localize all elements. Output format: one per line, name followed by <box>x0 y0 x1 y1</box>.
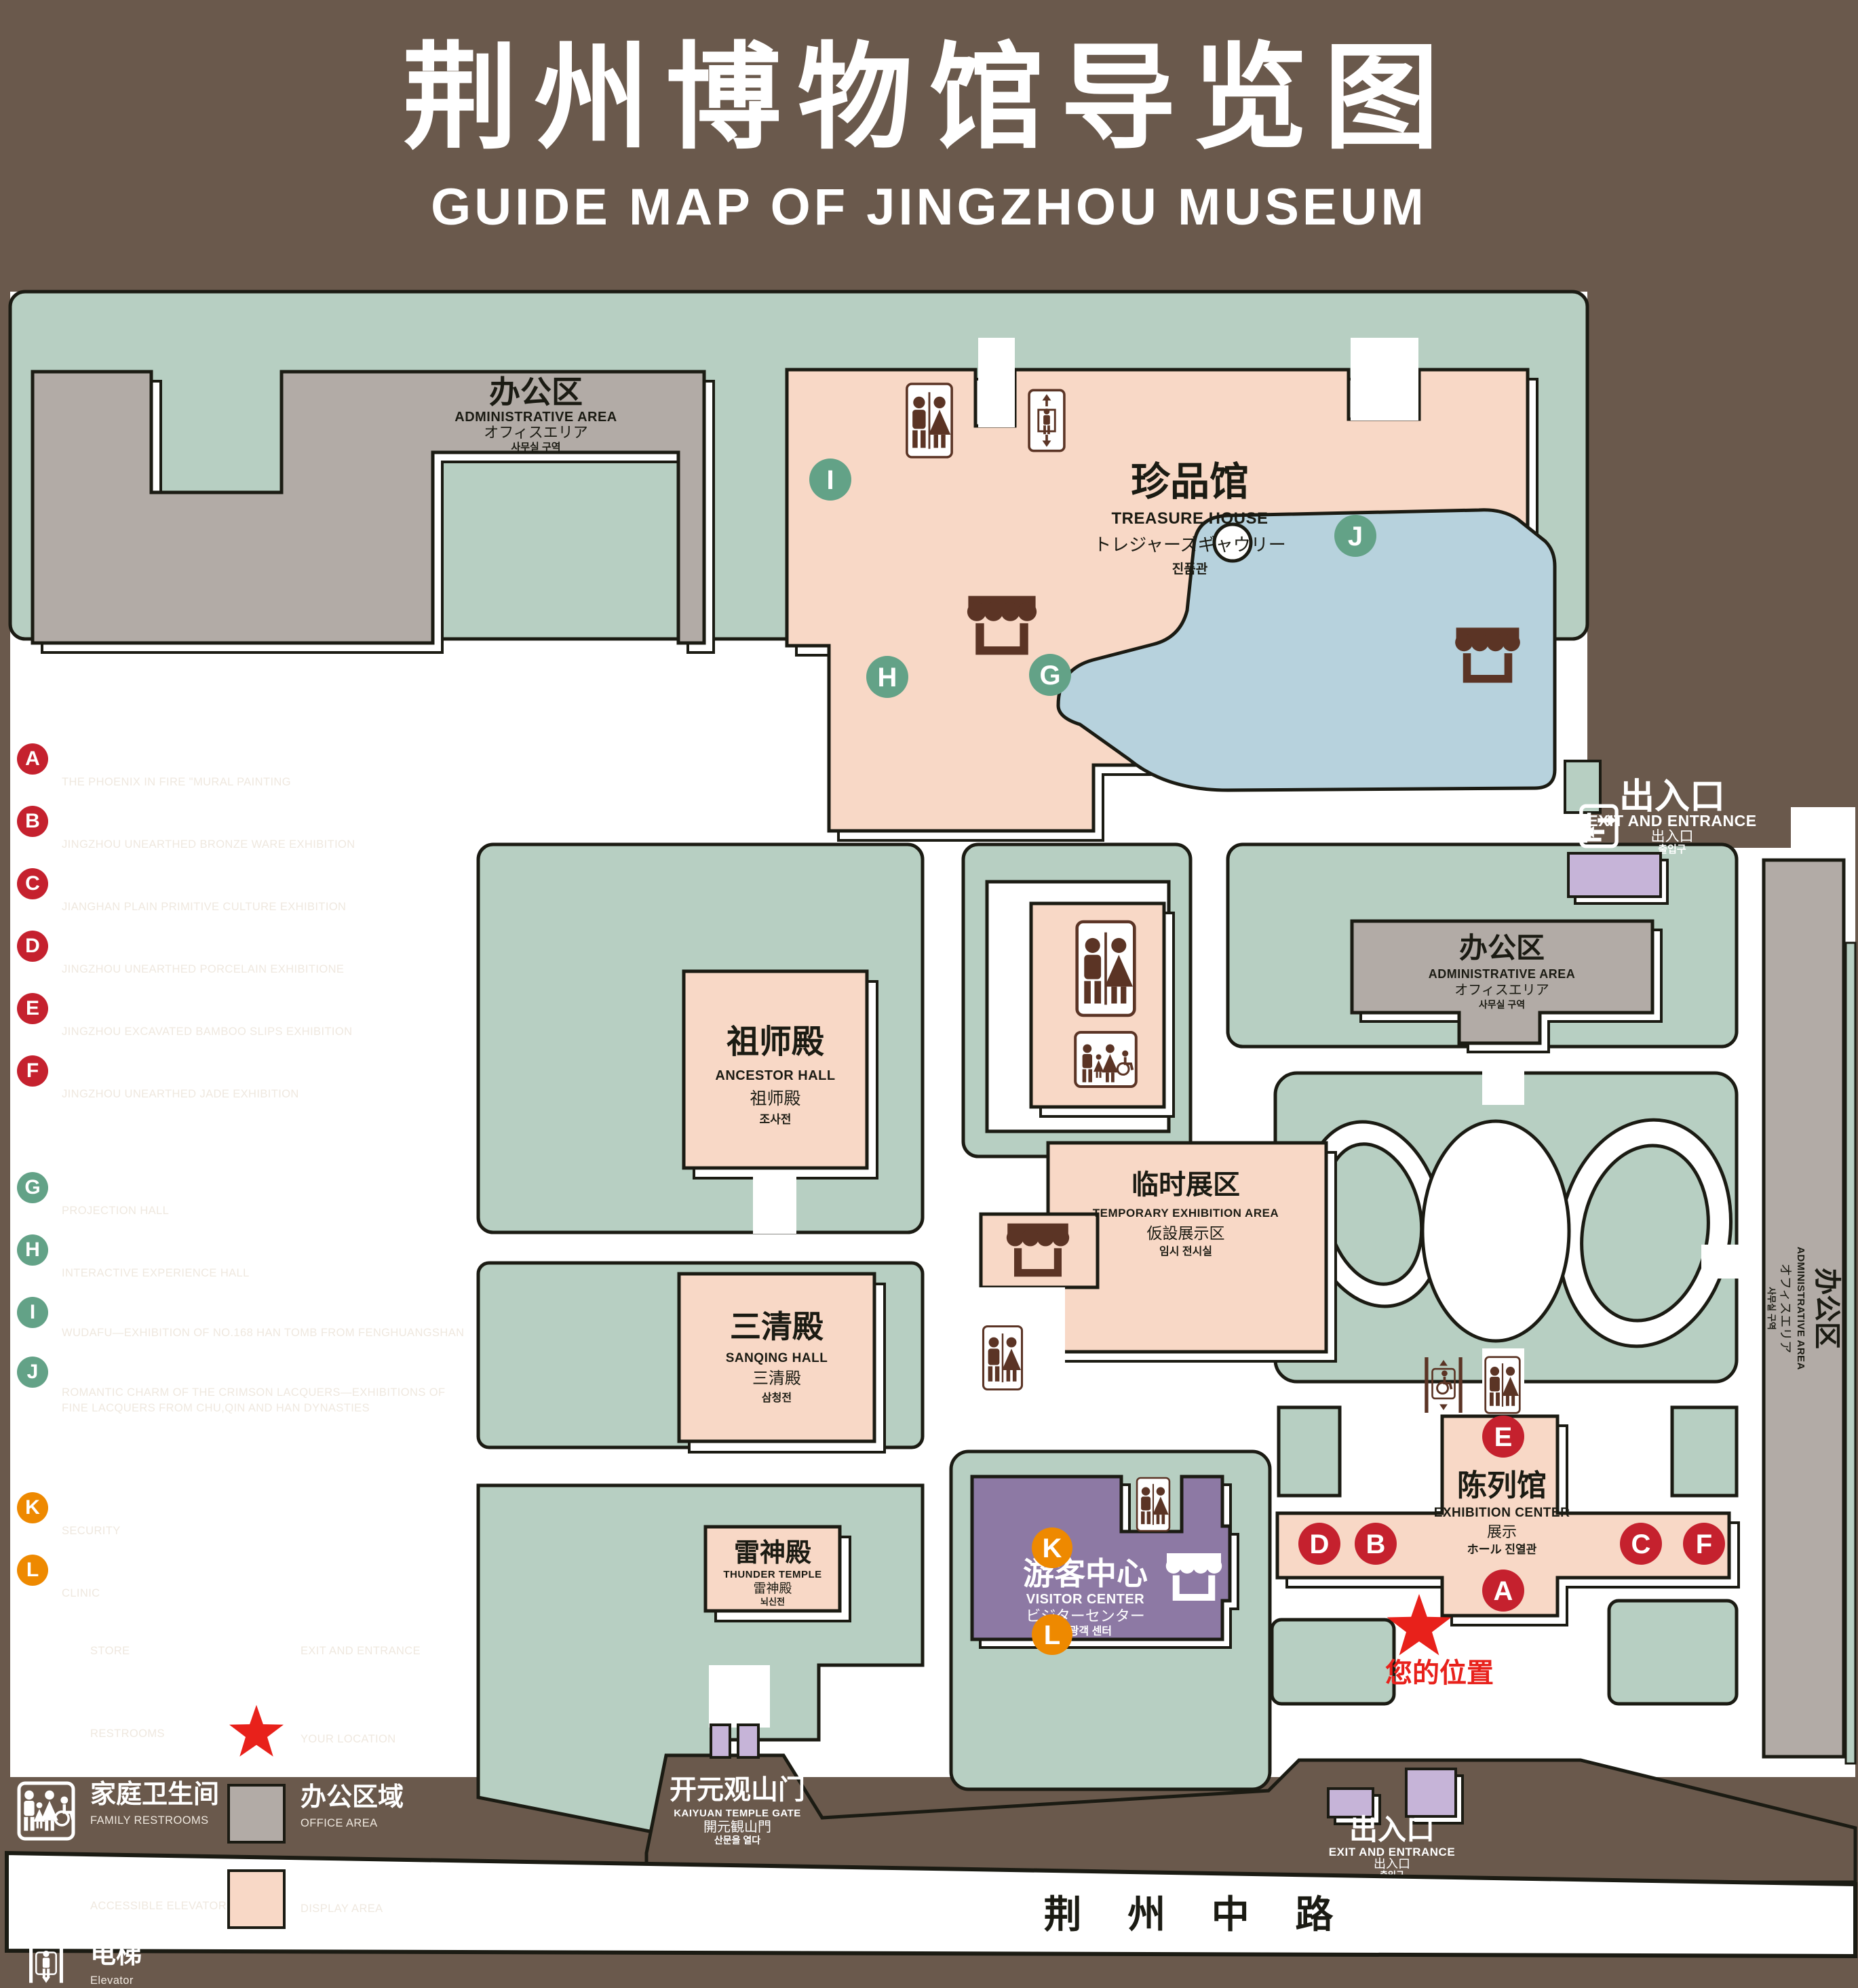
svg-text:办公区: 办公区 <box>1459 932 1545 964</box>
svg-text:三清殿: 三清殿 <box>752 1369 801 1388</box>
badge-G: G <box>1029 654 1071 696</box>
svg-text:삼청전: 삼청전 <box>762 1391 792 1404</box>
svg-text:オフィスエリア: オフィスエリア <box>1454 983 1549 998</box>
svg-text:三清殿: 三清殿 <box>730 1309 824 1344</box>
svg-text:临时展区: 临时展区 <box>1131 1170 1240 1200</box>
svg-text:ホール 진열관: ホール 진열관 <box>1467 1543 1537 1556</box>
visitor-center-building: 游客中心 VISITOR CENTER ビジターセンター 관광객 센터 K L <box>972 1477 1238 1655</box>
restrooms-icon <box>1486 1357 1520 1414</box>
svg-text:オフィスエリア: オフィスエリア <box>484 424 588 441</box>
badge-F: F <box>1683 1523 1725 1565</box>
svg-text:F: F <box>1696 1529 1712 1559</box>
lawn-exh-br <box>1609 1601 1737 1704</box>
badge-L: L <box>1032 1614 1072 1655</box>
svg-text:뇌신전: 뇌신전 <box>760 1597 785 1607</box>
badge-C: C <box>1620 1523 1662 1565</box>
svg-text:출입구: 출입구 <box>1658 844 1686 855</box>
svg-text:ADMINISTRATIVE AREA: ADMINISTRATIVE AREA <box>1429 967 1576 981</box>
svg-text:A: A <box>1494 1576 1513 1606</box>
svg-text:TEMPORARY EXHIBITION AREA: TEMPORARY EXHIBITION AREA <box>1093 1207 1279 1220</box>
lawn-exh-tr <box>1672 1407 1737 1496</box>
svg-text:祖师殿: 祖师殿 <box>750 1089 800 1108</box>
svg-text:珍品馆: 珍品馆 <box>1131 460 1249 504</box>
gate-pillar-east <box>738 1725 758 1757</box>
guide-map-poster: { "title": {"zh": "荆州博物馆导览图", "en": "GUI… <box>0 0 1858 1986</box>
svg-text:산문을 열다: 산문을 열다 <box>714 1835 760 1846</box>
svg-text:ANCESTOR HALL: ANCESTOR HALL <box>715 1068 835 1083</box>
svg-text:조사전: 조사전 <box>760 1113 792 1126</box>
badge-I: I <box>809 459 851 501</box>
family-restrooms-icon <box>1075 1032 1136 1087</box>
svg-text:开元观山门: 开元观山门 <box>670 1775 805 1805</box>
badge-H: H <box>866 656 908 698</box>
treasure-notch-west <box>978 338 1015 427</box>
admin-strip-east: 办公区 ADMINISTRATIVE AREA オフィスエリア 사무실 구역 <box>1764 860 1855 1763</box>
svg-text:祖师殿: 祖师殿 <box>727 1024 824 1060</box>
northeast-exit-building <box>1568 853 1661 897</box>
sanqing-hall-building: 三清殿 SANQING HALL 三清殿 삼청전 <box>679 1274 885 1452</box>
badge-E: E <box>1482 1416 1524 1458</box>
south-exit-building-west <box>1328 1789 1373 1817</box>
treasure-house-building: 珍品馆 TREASURE HOUSE トレジャーズギャウリー 진품관 I H G… <box>787 338 1555 840</box>
svg-text:H: H <box>878 663 897 693</box>
svg-text:EXHIBITION CENTER: EXHIBITION CENTER <box>1434 1506 1570 1520</box>
svg-text:D: D <box>1310 1529 1330 1559</box>
svg-text:B: B <box>1366 1529 1386 1559</box>
svg-text:L: L <box>1044 1620 1060 1650</box>
svg-text:トレジャーズギャウリー: トレジャーズギャウリー <box>1093 534 1285 555</box>
lawn-exh-bl <box>1272 1620 1394 1704</box>
elevator-icon <box>1029 390 1064 450</box>
svg-text:K: K <box>1043 1534 1062 1563</box>
svg-text:办公区: 办公区 <box>1812 1268 1842 1349</box>
lawn-exh-tl <box>1279 1407 1340 1496</box>
svg-text:ADMINISTRATIVE AREA: ADMINISTRATIVE AREA <box>454 410 617 425</box>
restrooms-icon <box>1077 922 1135 1015</box>
poster-header: 荆州博物馆导览图 GUIDE MAP OF JINGZHOU MUSEUM <box>0 0 1858 237</box>
svg-text:G: G <box>1039 661 1060 690</box>
svg-text:사무실 구역: 사무실 구역 <box>511 442 560 453</box>
svg-text:ADMINISTRATIVE AREA: ADMINISTRATIVE AREA <box>1795 1247 1806 1370</box>
svg-text:THUNDER TEMPLE: THUNDER TEMPLE <box>723 1569 821 1580</box>
svg-text:임시 전시실: 임시 전시실 <box>1159 1245 1212 1258</box>
garden-pond <box>1422 1121 1569 1341</box>
svg-text:雷神殿: 雷神殿 <box>753 1581 792 1596</box>
svg-text:C: C <box>1631 1529 1651 1559</box>
badge-A: A <box>1482 1570 1524 1612</box>
restrooms-icon <box>1137 1478 1169 1531</box>
garden <box>1270 1070 1748 1386</box>
svg-text:J: J <box>1348 522 1363 551</box>
treasure-notch-east <box>1351 338 1418 421</box>
gate-pillar-west <box>711 1725 730 1757</box>
svg-text:VISITOR CENTER: VISITOR CENTER <box>1026 1592 1144 1607</box>
badge-D: D <box>1298 1523 1340 1565</box>
your-location-label: 您的位置 <box>1385 1658 1494 1688</box>
road-label: 荆 州 中 路 <box>1044 1893 1351 1936</box>
page-title: 荆州博物馆导览图 <box>0 4 1858 171</box>
svg-text:E: E <box>1494 1422 1513 1452</box>
svg-text:I: I <box>826 465 834 495</box>
svg-text:진품관: 진품관 <box>1172 562 1208 577</box>
svg-text:SANQING HALL: SANQING HALL <box>726 1351 828 1365</box>
svg-text:出入口: 出入口 <box>1651 829 1694 844</box>
badge-B: B <box>1355 1523 1397 1565</box>
restroom-block <box>987 882 1174 1131</box>
svg-text:オフィスエリア: オフィスエリア <box>1778 1264 1792 1354</box>
svg-text:仮設展示区: 仮設展示区 <box>1147 1224 1225 1242</box>
svg-text:出入口: 出入口 <box>1349 1814 1435 1846</box>
restrooms-icon <box>907 384 952 457</box>
ancestor-path-stub <box>753 1171 796 1234</box>
gate-walkway <box>709 1665 770 1728</box>
svg-text:TREASURE HOUSE: TREASURE HOUSE <box>1111 509 1268 528</box>
south-exit-building-east <box>1406 1769 1456 1816</box>
badge-J: J <box>1334 515 1376 557</box>
page-subtitle: GUIDE MAP OF JINGZHOU MUSEUM <box>0 178 1858 237</box>
svg-text:開元観山門: 開元観山門 <box>703 1819 771 1835</box>
restrooms-icon <box>983 1327 1022 1390</box>
svg-text:雷神殿: 雷神殿 <box>734 1539 811 1567</box>
svg-text:办公区: 办公区 <box>489 374 583 410</box>
svg-text:展示: 展示 <box>1487 1523 1517 1540</box>
thunder-temple-building: 雷神殿 THUNDER TEMPLE 雷神殿 뇌신전 <box>705 1527 850 1621</box>
museum-map: 开元观山门 KAIYUAN TEMPLE GATE 開元観山門 산문을 열다 出… <box>0 0 1858 1986</box>
svg-text:出入口: 出入口 <box>1619 777 1725 817</box>
svg-text:出入口: 出入口 <box>1374 1857 1410 1871</box>
svg-text:사무실 구역: 사무실 구역 <box>1766 1287 1777 1329</box>
svg-text:陈列馆: 陈列馆 <box>1457 1469 1547 1502</box>
svg-text:KAIYUAN TEMPLE GATE: KAIYUAN TEMPLE GATE <box>674 1808 801 1819</box>
svg-text:사무실 구역: 사무실 구역 <box>1479 999 1525 1010</box>
badge-K: K <box>1032 1527 1072 1568</box>
